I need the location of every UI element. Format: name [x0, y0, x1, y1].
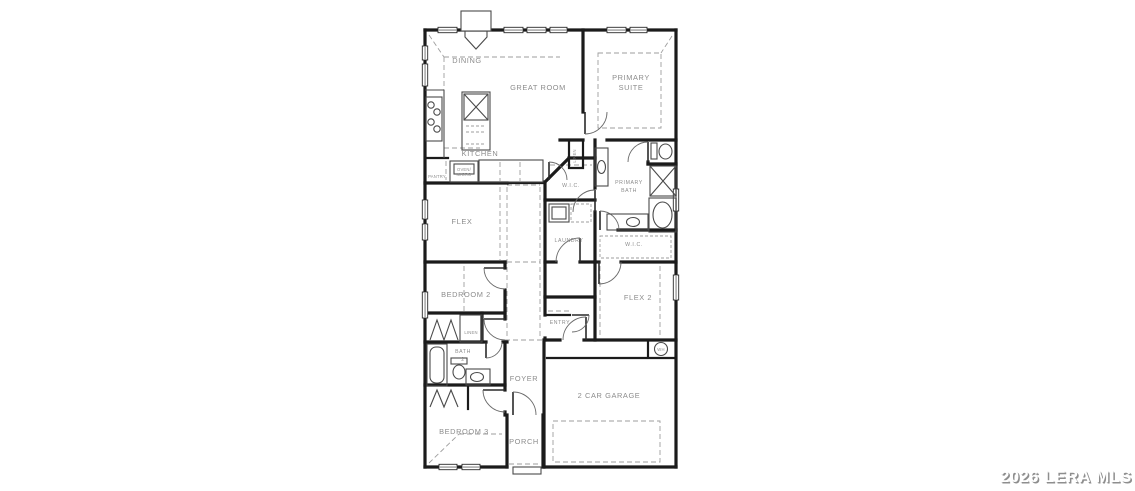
- room-label-kitchen: KITCHEN: [462, 149, 499, 158]
- room-label-pantry: PANTRY: [428, 174, 446, 179]
- floorplan-page: DINING GREAT ROOM PRIMARY SUITE KITCHEN …: [0, 0, 1135, 491]
- room-label-bedroom-2: BEDROOM 2: [441, 290, 491, 299]
- kitchen-island: [462, 92, 490, 150]
- room-label-bath-2-1: BATH: [455, 349, 471, 355]
- fireplace-icon: [461, 11, 491, 49]
- room-label-bath-2-2: 2: [461, 357, 465, 363]
- window: [607, 27, 626, 32]
- walls: [425, 30, 676, 467]
- porch-step: [513, 467, 541, 474]
- window: [439, 464, 457, 469]
- bathtub-icon: [427, 344, 447, 386]
- room-label-primary-bath-2: BATH: [621, 188, 637, 194]
- room-label-primary-suite-2: SUITE: [619, 83, 644, 92]
- room-label-water-heater: WH: [657, 347, 664, 352]
- kitchen-counter: [479, 160, 543, 182]
- window: [422, 200, 427, 219]
- window: [550, 27, 567, 32]
- room-label-primary-wic: W.I.C.: [562, 183, 580, 189]
- mls-watermark: 2026 LERA MLS: [1000, 469, 1132, 487]
- window: [673, 275, 678, 300]
- closet-bifold-doors: [430, 390, 458, 407]
- room-label-entry: ENTRY: [550, 320, 571, 326]
- room-label-bedroom-3: BEDROOM 3: [439, 427, 489, 436]
- room-label-oven-2: MICRO: [457, 172, 472, 177]
- garage-door-dashed: [553, 421, 660, 462]
- bathtub-icon: [649, 198, 676, 232]
- window: [422, 64, 427, 86]
- room-label-porch: PORCH: [509, 437, 539, 446]
- room-label-primary-bath-1: PRIMARY: [615, 180, 643, 186]
- closet-bifold-doors: [430, 320, 458, 340]
- window: [422, 46, 427, 60]
- room-label-secondary-wic: W.I.C.: [625, 242, 643, 248]
- windows: [422, 27, 678, 469]
- floorplan-canvas: DINING GREAT ROOM PRIMARY SUITE KITCHEN …: [0, 0, 1135, 491]
- room-label-primary-suite-1: PRIMARY: [612, 73, 650, 82]
- window: [462, 464, 480, 469]
- room-label-foyer: FOYER: [510, 374, 538, 383]
- room-label-laundry: LAUNDRY: [555, 238, 584, 244]
- window: [527, 27, 546, 32]
- shower-icon: [650, 166, 676, 196]
- window: [438, 27, 457, 32]
- sink-icon: [595, 148, 608, 186]
- room-label-flex-2: FLEX 2: [624, 293, 652, 302]
- window: [422, 224, 427, 240]
- room-label-linen-primary: LINEN: [572, 149, 577, 162]
- room-label-flex: FLEX: [452, 217, 473, 226]
- room-label-dining: DINING: [452, 56, 481, 65]
- room-label-linen-hall: LINEN: [464, 330, 477, 335]
- toilet-icon: [651, 143, 672, 159]
- linen-cabinet: [460, 315, 482, 342]
- washer-dryer: [549, 204, 591, 222]
- window: [504, 27, 523, 32]
- sink-icon: [466, 369, 490, 385]
- window: [630, 27, 647, 32]
- room-label-garage: 2 CAR GARAGE: [578, 391, 641, 400]
- cooktop-icon: [425, 90, 444, 158]
- room-label-great-room: GREAT ROOM: [510, 83, 566, 92]
- window: [422, 292, 427, 318]
